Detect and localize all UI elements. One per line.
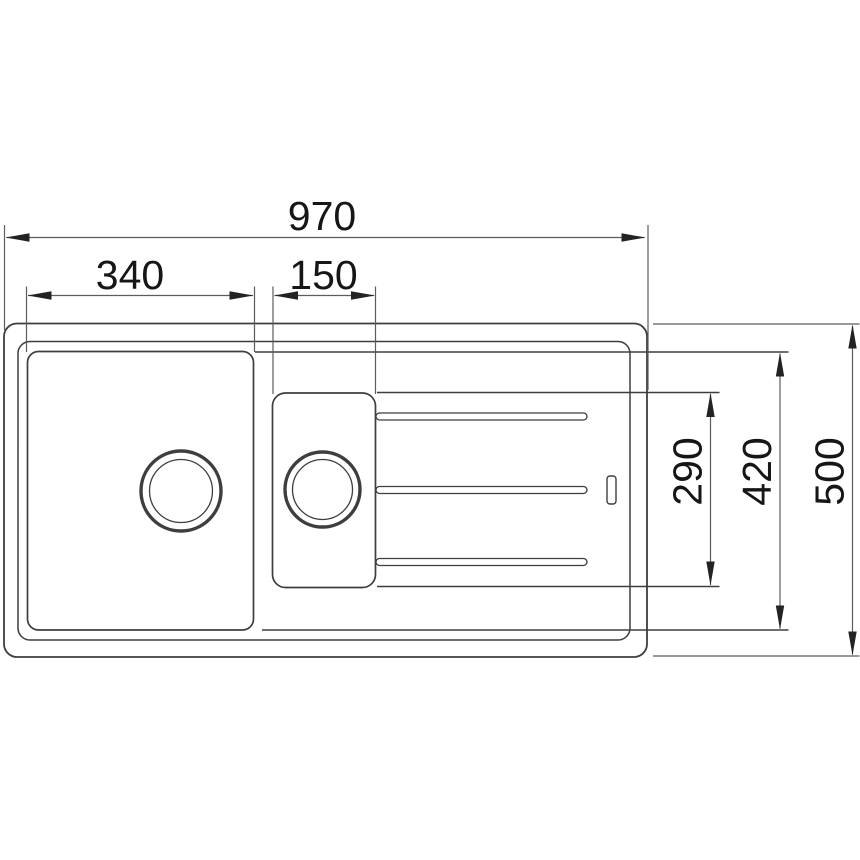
arrowhead-right-icon [622, 233, 646, 241]
dimension-label: 970 [288, 193, 356, 239]
arrowhead-left-icon [6, 233, 30, 241]
dimension-main-bowl-width: 340 [27, 252, 255, 352]
sink-outer-edge [4, 324, 647, 658]
dimension-label: 290 [665, 437, 711, 505]
arrowhead-up-icon [848, 325, 856, 349]
arrowhead-down-icon [776, 606, 784, 630]
drainer-groove-3 [376, 559, 587, 566]
arrowhead-down-icon [706, 562, 714, 586]
arrowhead-left-icon [28, 291, 52, 299]
dimension-bowl-depth: 420 [734, 353, 784, 630]
half-bowl-drain-outer [285, 452, 360, 527]
arrowhead-up-icon [776, 353, 784, 377]
main-bowl-drain-outer [141, 451, 221, 531]
arrowhead-down-icon [848, 632, 856, 656]
dimension-label: 340 [96, 252, 164, 298]
arrowhead-right-icon [230, 291, 254, 299]
drainer-groove-2 [376, 487, 587, 494]
half-bowl-drain-inner [293, 460, 353, 520]
sink-inner-rim [18, 342, 630, 641]
sink-technical-drawing-page: 970 340 150 [0, 0, 860, 860]
main-bowl-drain-inner [150, 460, 213, 523]
drainer-groove-1 [376, 413, 587, 420]
arrowhead-up-icon [706, 393, 714, 417]
dimension-drainer-recess-depth: 290 [665, 393, 715, 586]
sink-technical-drawing: 970 340 150 [0, 0, 860, 860]
dimension-label: 500 [807, 437, 853, 505]
dimension-label: 150 [289, 252, 357, 298]
overflow-slot [607, 476, 616, 504]
dimension-label: 420 [734, 437, 780, 505]
